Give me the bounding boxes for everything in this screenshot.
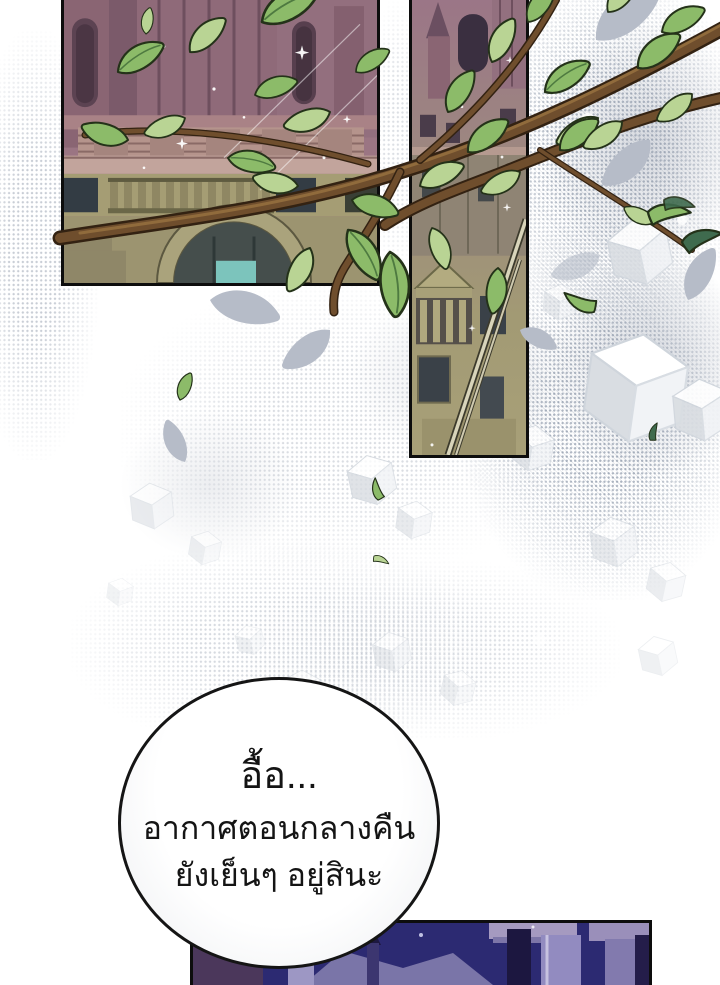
cube	[588, 514, 640, 570]
street-art	[412, 0, 526, 455]
cube	[604, 214, 676, 291]
shadow-blob	[120, 410, 300, 560]
shadow-blob	[550, 250, 720, 480]
panel-castle	[61, 0, 380, 286]
cube	[106, 576, 135, 607]
cube	[371, 629, 413, 675]
cube	[438, 667, 478, 710]
cube	[187, 529, 223, 568]
cube	[345, 451, 399, 509]
speech-line-1: อื้อ...	[240, 748, 317, 804]
cube	[542, 283, 577, 322]
comic-page: อื้อ... อากาศตอนกลางคืน ยังเย็นๆ อยู่สิน…	[0, 0, 720, 985]
cube	[129, 481, 175, 531]
cube	[644, 559, 688, 606]
panel-street	[409, 0, 529, 458]
cube	[233, 622, 267, 658]
speech-line-3: ยังเย็นๆ อยู่สินะ	[175, 852, 384, 898]
speech-line-2: อากาศตอนกลางคืน	[143, 804, 416, 852]
cube	[672, 377, 720, 444]
cube	[580, 328, 691, 448]
castle-art	[64, 0, 377, 283]
cube	[636, 633, 680, 680]
speech-bubble: อื้อ... อากาศตอนกลางคืน ยังเย็นๆ อยู่สิน…	[118, 677, 440, 969]
cube	[394, 499, 433, 541]
shadow-blob	[540, 20, 720, 270]
